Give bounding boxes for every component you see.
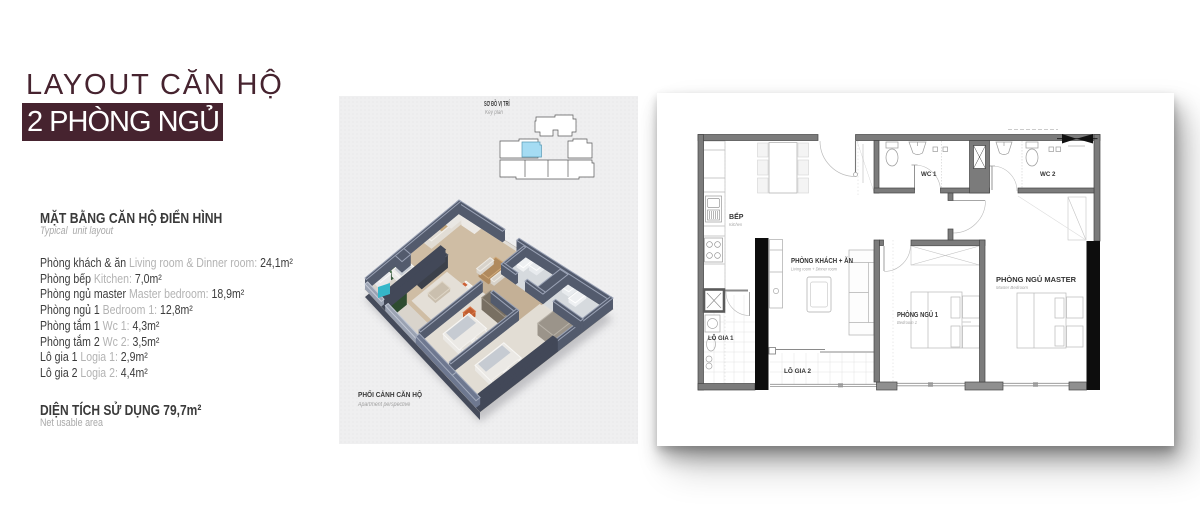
svg-text:Living room + Dinner room: Living room + Dinner room <box>791 267 837 272</box>
svg-text:PHÒNG NGỦ 1: PHÒNG NGỦ 1 <box>897 310 938 319</box>
svg-text:LÔ GIA 2: LÔ GIA 2 <box>784 366 811 375</box>
svg-text:LÔ GIA 1: LÔ GIA 1 <box>708 334 734 342</box>
svg-text:Master Bedroom: Master Bedroom <box>996 285 1028 290</box>
svg-text:PHÒNG KHÁCH + ĂN: PHÒNG KHÁCH + ĂN <box>791 256 853 265</box>
svg-text:PHÒNG NGỦ MASTER: PHÒNG NGỦ MASTER <box>996 275 1076 284</box>
svg-text:WC 2: WC 2 <box>1040 171 1056 178</box>
svg-text:Kitchen: Kitchen <box>729 222 742 227</box>
svg-text:BẾP: BẾP <box>729 211 744 221</box>
svg-text:Bedroom 1: Bedroom 1 <box>897 320 917 325</box>
svg-text:WC 1: WC 1 <box>921 171 937 178</box>
